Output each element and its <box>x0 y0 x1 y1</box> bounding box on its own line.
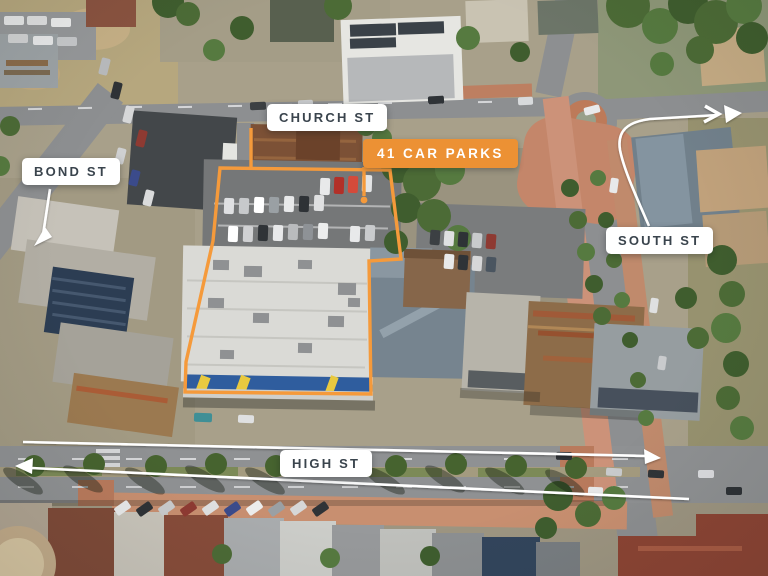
arrow-right-icon <box>644 449 661 464</box>
car-parks-badge: 41 CAR PARKS <box>363 139 518 168</box>
arrow-left-icon <box>15 458 33 474</box>
street-label-bond-st: BOND ST <box>22 158 120 185</box>
south-st-route-line <box>619 115 718 226</box>
arrow-right-icon <box>724 105 742 123</box>
street-label-high-st: HIGH ST <box>280 450 372 477</box>
bond-st-arrow-line <box>43 189 50 235</box>
leader-dot-icon <box>361 197 368 204</box>
street-label-south-st: SOUTH ST <box>606 227 713 254</box>
chevron-right-icon <box>704 106 719 122</box>
street-label-church-st: CHURCH ST <box>267 104 387 131</box>
property-boundary-outline <box>185 168 401 394</box>
aerial-site-photo: CHURCH ST BOND ST SOUTH ST HIGH ST 41 CA… <box>0 0 768 576</box>
annotation-overlay <box>0 0 768 576</box>
